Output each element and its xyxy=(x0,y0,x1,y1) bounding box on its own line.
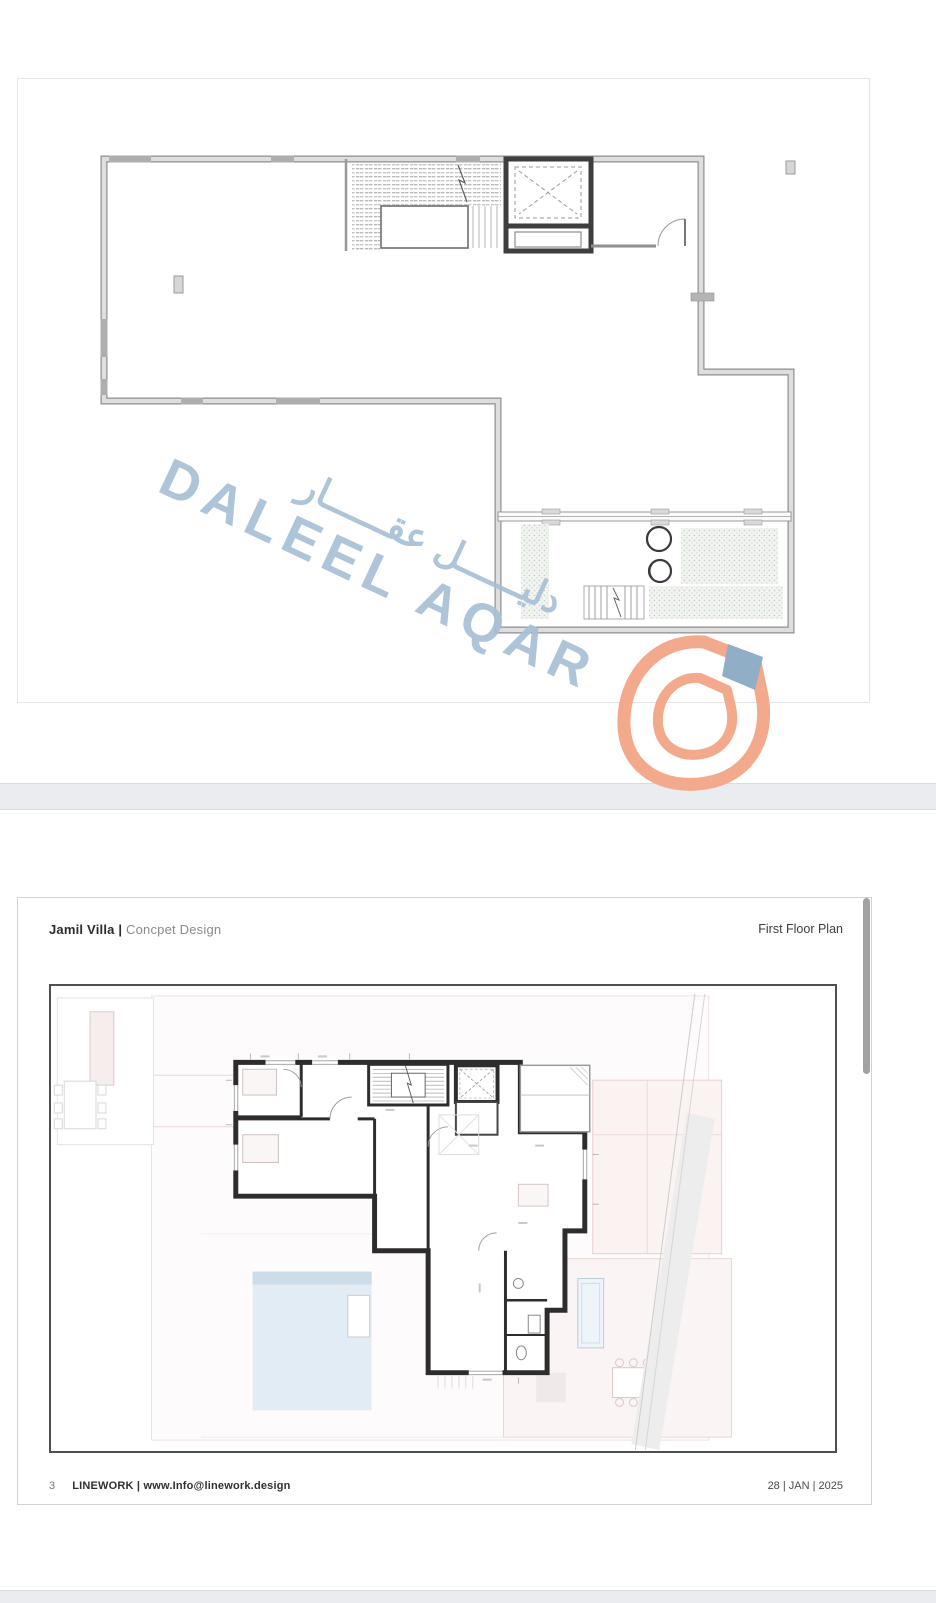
door-swing xyxy=(658,219,685,246)
sheet-footer: 3 LINEWORK | www.Info@linework.design xyxy=(49,1480,291,1492)
terrace-window-band xyxy=(498,509,791,525)
page-number: 3 xyxy=(49,1480,55,1492)
project-subtitle: Concpet Design xyxy=(126,922,221,937)
daleel-aqar-logo xyxy=(612,630,784,798)
project-name: Jamil Villa | xyxy=(49,922,122,937)
logo-inner-ring xyxy=(658,678,732,755)
stair xyxy=(369,1064,448,1105)
stair-core xyxy=(346,159,501,251)
wall-joint-tick xyxy=(691,293,714,301)
column xyxy=(174,276,183,293)
scrollbar-thumb[interactable] xyxy=(863,898,870,1074)
page-separator-bottom xyxy=(0,1590,936,1603)
column xyxy=(786,161,795,174)
elevator xyxy=(456,1065,498,1134)
sheet-date: 28 | JAN | 2025 xyxy=(768,1480,843,1492)
document-page-2: Jamil Villa | Concpet Design First Floor… xyxy=(17,897,872,1505)
company-info: LINEWORK | www.Info@linework.design xyxy=(72,1480,290,1492)
daleel-aqar-watermark: دليــــــل عقــــــار DALEEL AQAR xyxy=(151,410,624,702)
swimming-pool xyxy=(253,1272,372,1411)
terrace-chairs xyxy=(647,527,671,582)
first-floor-plan-drawing xyxy=(51,986,835,1451)
sheet-title: First Floor Plan xyxy=(758,922,843,936)
roof-plan-drawing: دليــــــل عقــــــار DALEEL AQAR xyxy=(18,79,869,702)
sheet-header: Jamil Villa | Concpet Design xyxy=(49,922,221,937)
elevator-core xyxy=(506,159,685,251)
page-separator xyxy=(0,783,936,810)
drawing-frame xyxy=(49,984,837,1453)
document-page-1: دليــــــل عقــــــار DALEEL AQAR xyxy=(17,78,870,703)
